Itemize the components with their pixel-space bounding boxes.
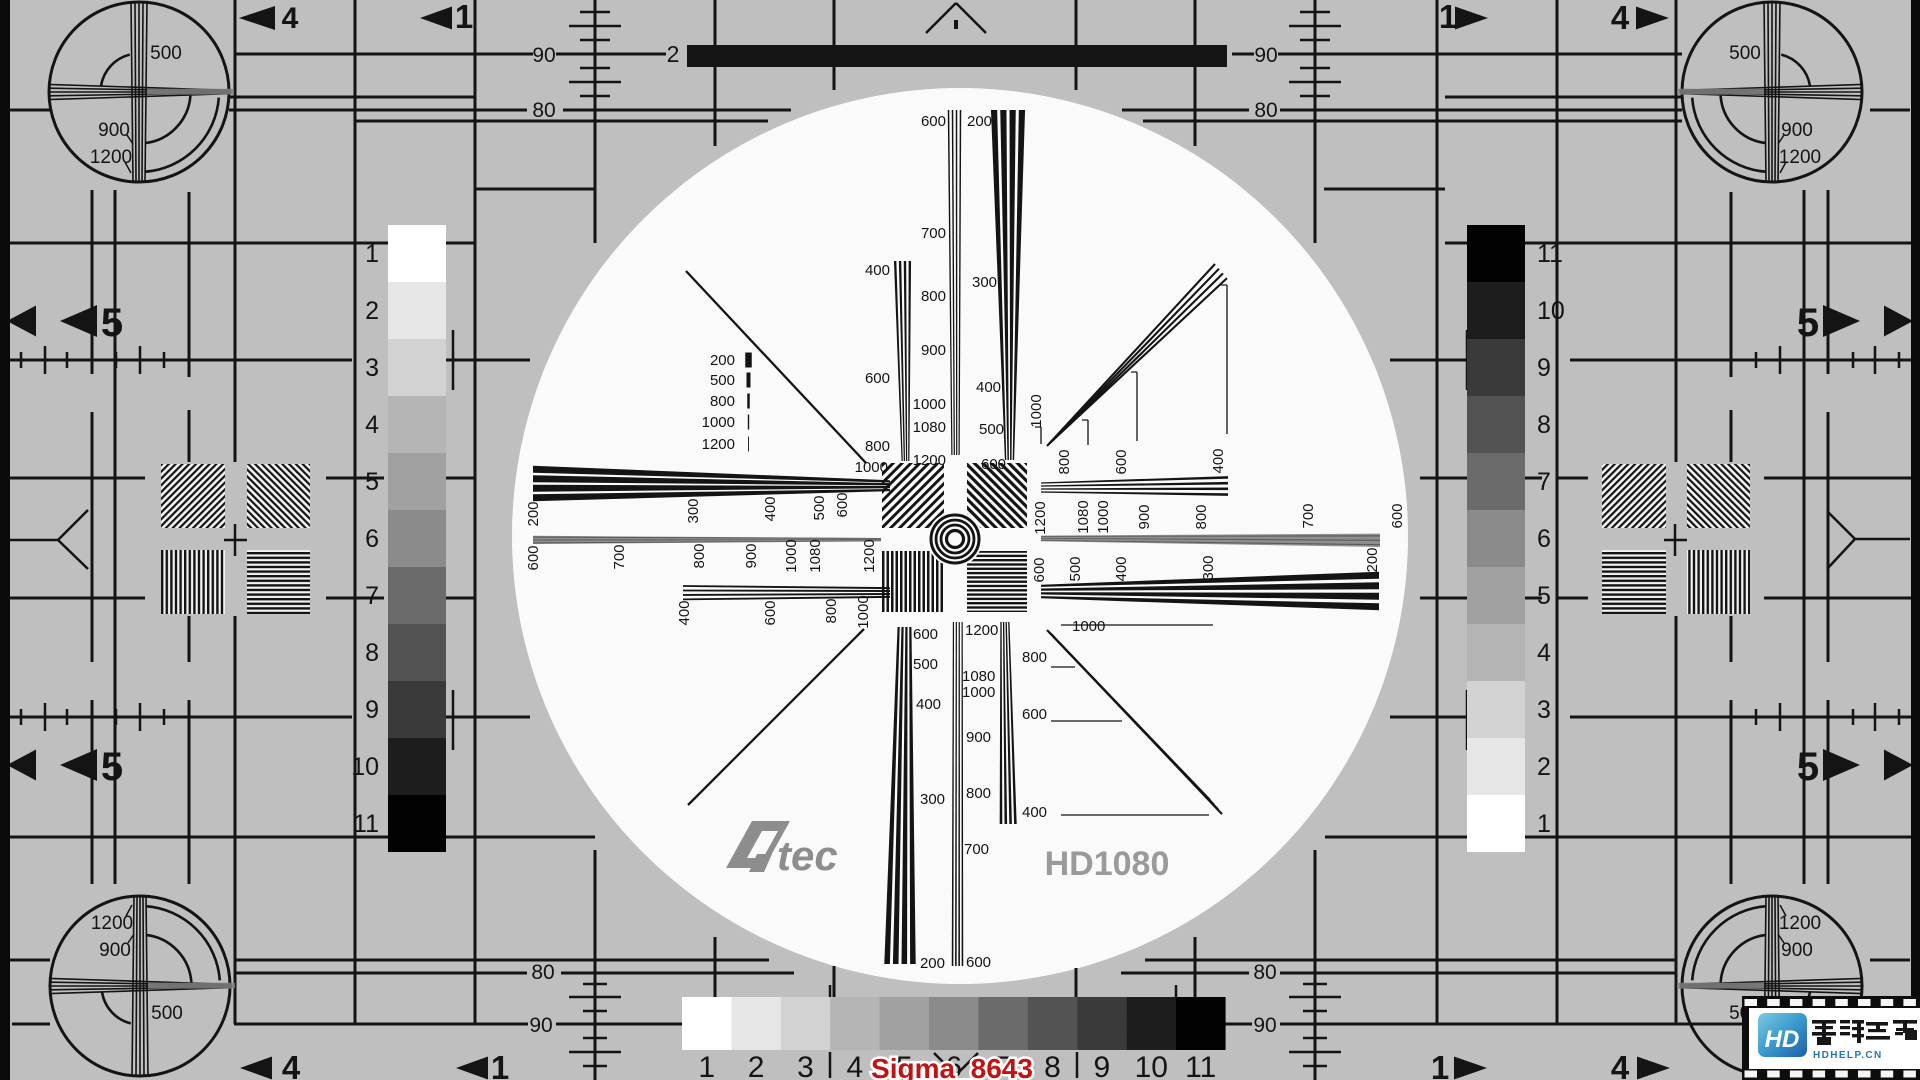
svg-text:4: 4 [1537, 639, 1551, 667]
svg-text:4: 4 [282, 2, 299, 35]
svg-text:500: 500 [1067, 556, 1084, 581]
svg-text:90: 90 [1254, 44, 1277, 67]
svg-text:HD1080: HD1080 [1045, 845, 1170, 883]
svg-text:80: 80 [1253, 961, 1276, 984]
svg-text:90: 90 [529, 1014, 552, 1037]
svg-text:1000: 1000 [783, 539, 800, 572]
svg-text:1080: 1080 [807, 539, 824, 572]
svg-text:1: 1 [1439, 0, 1457, 35]
svg-text:300: 300 [972, 274, 997, 291]
svg-text:900: 900 [921, 342, 946, 359]
svg-text:90: 90 [1253, 1014, 1276, 1037]
svg-text:1: 1 [1537, 810, 1551, 838]
svg-text:5: 5 [101, 745, 123, 789]
svg-text:600: 600 [921, 113, 946, 130]
svg-text:1: 1 [455, 0, 473, 35]
svg-text:90: 90 [532, 44, 555, 67]
svg-text:900: 900 [1781, 940, 1813, 961]
svg-text:4: 4 [365, 411, 379, 439]
svg-text:1: 1 [698, 1051, 715, 1080]
svg-text:600: 600 [1022, 706, 1047, 723]
svg-text:10: 10 [1537, 297, 1565, 325]
svg-text:Sigma_8643: Sigma_8643 [871, 1053, 1033, 1080]
svg-text:400: 400 [762, 496, 779, 521]
svg-text:3: 3 [365, 354, 379, 382]
svg-text:700: 700 [921, 225, 946, 242]
svg-text:6: 6 [1537, 525, 1551, 553]
svg-text:2: 2 [1537, 753, 1551, 781]
svg-text:1000: 1000 [702, 414, 735, 431]
svg-text:1: 1 [491, 1049, 509, 1080]
svg-text:400: 400 [976, 379, 1001, 396]
svg-text:7: 7 [1537, 468, 1551, 496]
svg-text:600: 600 [913, 626, 938, 643]
svg-text:80: 80 [531, 961, 554, 984]
svg-text:600: 600 [966, 954, 991, 971]
svg-text:1200: 1200 [965, 622, 998, 639]
svg-text:300: 300 [1200, 555, 1217, 580]
svg-text:600: 600 [525, 545, 542, 570]
svg-text:800: 800 [1193, 504, 1210, 529]
svg-text:800: 800 [1022, 649, 1047, 666]
svg-text:2: 2 [748, 1051, 765, 1080]
svg-text:1200: 1200 [702, 436, 735, 453]
svg-text:1080: 1080 [913, 419, 946, 436]
svg-text:200: 200 [525, 501, 542, 526]
svg-text:1000: 1000 [855, 459, 888, 476]
svg-text:900: 900 [1136, 504, 1153, 529]
svg-text:600: 600 [1113, 449, 1130, 474]
svg-text:900: 900 [743, 543, 760, 568]
svg-text:HDHELP.CN: HDHELP.CN [1813, 1050, 1883, 1061]
svg-text:8: 8 [365, 639, 379, 667]
svg-text:600: 600 [762, 600, 779, 625]
svg-text:400: 400 [1113, 556, 1130, 581]
svg-text:1080: 1080 [1075, 500, 1092, 533]
svg-text:800: 800 [823, 598, 840, 623]
svg-text:900: 900 [966, 729, 991, 746]
svg-text:200: 200 [710, 352, 735, 369]
svg-text:1200: 1200 [1779, 913, 1821, 934]
svg-text:9: 9 [1094, 1051, 1111, 1080]
svg-text:300: 300 [920, 791, 945, 808]
svg-text:200: 200 [1364, 547, 1381, 572]
svg-text:800: 800 [966, 785, 991, 802]
svg-text:1080: 1080 [962, 668, 995, 685]
svg-text:500: 500 [710, 372, 735, 389]
svg-text:500: 500 [150, 43, 182, 64]
svg-text:300: 300 [685, 498, 702, 523]
svg-text:800: 800 [921, 288, 946, 305]
svg-text:800: 800 [865, 438, 890, 455]
svg-text:tec: tec [777, 832, 838, 879]
svg-text:400: 400 [676, 600, 693, 625]
svg-text:11: 11 [1537, 240, 1563, 268]
svg-text:500: 500 [811, 495, 828, 520]
svg-text:9: 9 [1537, 354, 1551, 382]
svg-text:10: 10 [351, 753, 379, 781]
svg-text:8: 8 [1537, 411, 1551, 439]
svg-text:4: 4 [282, 1049, 301, 1080]
svg-text:200: 200 [920, 955, 945, 972]
svg-text:400: 400 [1022, 804, 1047, 821]
svg-text:400: 400 [916, 696, 941, 713]
svg-text:800: 800 [1056, 449, 1073, 474]
svg-text:7: 7 [365, 582, 379, 610]
svg-text:10: 10 [1135, 1051, 1168, 1080]
svg-text:4: 4 [1611, 1049, 1630, 1080]
svg-text:1000: 1000 [1028, 394, 1045, 427]
svg-text:2: 2 [365, 297, 379, 325]
svg-text:5: 5 [1797, 301, 1819, 345]
svg-text:9: 9 [365, 696, 379, 724]
svg-text:1000: 1000 [1095, 500, 1112, 533]
svg-text:800: 800 [710, 393, 735, 410]
svg-text:600: 600 [1031, 557, 1048, 582]
svg-text:5: 5 [1537, 582, 1551, 610]
svg-text:11: 11 [1185, 1051, 1216, 1080]
svg-text:700: 700 [964, 841, 989, 858]
svg-text:500: 500 [913, 656, 938, 673]
svg-text:80: 80 [1254, 99, 1277, 122]
svg-text:1000: 1000 [1072, 618, 1105, 635]
svg-text:800: 800 [691, 543, 708, 568]
svg-text:400: 400 [1210, 448, 1227, 473]
svg-text:600: 600 [834, 492, 851, 517]
svg-text:5: 5 [101, 301, 123, 345]
svg-text:11: 11 [353, 810, 379, 838]
svg-text:3: 3 [1537, 696, 1551, 724]
svg-text:600: 600 [865, 370, 890, 387]
svg-text:3: 3 [797, 1051, 814, 1080]
svg-text:1: 1 [1431, 1049, 1449, 1080]
svg-text:500: 500 [151, 1003, 183, 1024]
svg-text:4: 4 [1611, 0, 1630, 36]
svg-text:900: 900 [98, 120, 130, 141]
svg-text:6: 6 [365, 525, 379, 553]
svg-text:900: 900 [1781, 120, 1813, 141]
svg-text:600: 600 [981, 456, 1006, 473]
svg-text:700: 700 [611, 544, 628, 569]
svg-text:1000: 1000 [855, 595, 872, 628]
svg-text:5: 5 [1797, 745, 1819, 789]
svg-text:900: 900 [99, 940, 131, 961]
svg-text:500: 500 [979, 421, 1004, 438]
svg-text:HD: HD [1765, 1026, 1800, 1053]
svg-text:5: 5 [365, 468, 379, 496]
svg-text:1000: 1000 [962, 684, 995, 701]
svg-text:4: 4 [847, 1051, 864, 1080]
svg-text:1200: 1200 [91, 913, 133, 934]
svg-text:1200: 1200 [913, 452, 946, 469]
svg-text:500: 500 [1729, 43, 1761, 64]
svg-text:600: 600 [1389, 503, 1406, 528]
svg-text:1: 1 [365, 240, 379, 268]
svg-text:80: 80 [532, 99, 555, 122]
svg-text:200: 200 [967, 113, 992, 130]
svg-text:700: 700 [1300, 503, 1317, 528]
svg-text:2: 2 [667, 41, 680, 67]
svg-text:400: 400 [865, 262, 890, 279]
svg-text:1000: 1000 [913, 396, 946, 413]
svg-text:1200: 1200 [1032, 501, 1049, 534]
svg-text:8: 8 [1044, 1051, 1061, 1080]
svg-text:1200: 1200 [861, 539, 878, 572]
